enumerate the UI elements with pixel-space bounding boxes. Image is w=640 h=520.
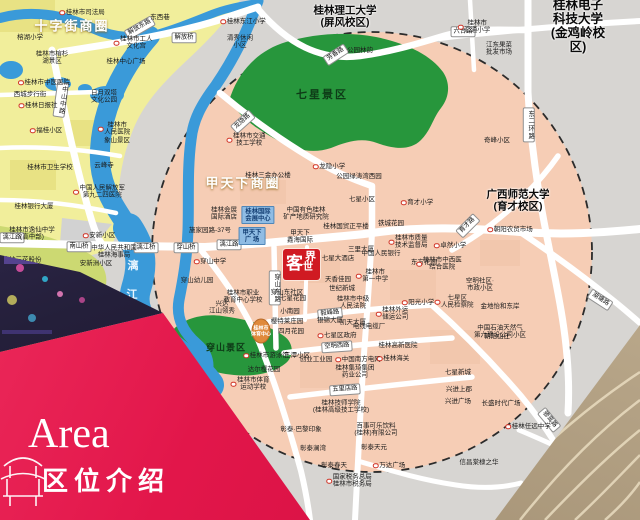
- poi-marker-icon: [318, 333, 324, 339]
- poi-label: 江东果菜 批发市场: [486, 42, 512, 57]
- landmark-box-label: 甲天下 广 场: [239, 227, 266, 245]
- poi-label: 创业工业园: [300, 356, 333, 364]
- landmark-box-label: 桂林国际 会展中心: [241, 206, 274, 224]
- road-label: 育才路: [455, 213, 481, 239]
- road-label: 穿山桥: [174, 242, 199, 253]
- poi-label: 兴进广场: [445, 398, 471, 406]
- poi-marker-icon: [356, 273, 362, 279]
- poi-label: 云峰寺: [94, 162, 114, 170]
- university-label: 桂林电子科技大学 (金鸡岭校区): [547, 0, 609, 54]
- poi-label: 桂林市 汇通小学: [458, 20, 491, 35]
- road-label: 解放桥: [172, 32, 197, 43]
- poi-marker-icon: [98, 126, 104, 132]
- poi-label: 龙隐小学: [313, 163, 346, 171]
- poi-label: 桂林日报社: [19, 102, 58, 110]
- logo-char: 界: [305, 252, 316, 263]
- poi-label: 桂林国贸正平楼: [323, 223, 369, 231]
- poi-marker-icon: [243, 353, 249, 359]
- river-label: 漓: [128, 260, 139, 272]
- poi-label: 彰泰澜湾: [300, 445, 326, 453]
- poi-label: 福桂小区: [30, 127, 63, 135]
- poi-marker-icon: [376, 311, 382, 317]
- poi-label: 桂林市体育 运动学校: [231, 377, 270, 392]
- banner-title-en: Area: [28, 410, 110, 458]
- poi-label: 兴达 江山领秀: [209, 301, 235, 316]
- poi-marker-icon: [313, 164, 319, 170]
- poi-label: 奇峰小区: [484, 137, 510, 145]
- poi-label: 桂林市榕杉 湖景区: [36, 51, 69, 66]
- poi-marker-icon: [435, 299, 441, 305]
- banner-title-zh: 区位介绍: [42, 461, 170, 498]
- poi-label: 桂林市工人 文化宫: [114, 36, 153, 51]
- poi-marker-icon: [416, 261, 422, 267]
- poi-label: 空明社区· 市政小区: [466, 278, 494, 293]
- poi-label: 安新小区: [83, 232, 116, 240]
- poi-label: 桂林市中级 人民法院: [337, 296, 370, 311]
- university-label: 桂林理工大学 (屏风校区): [314, 5, 377, 29]
- poi-label: 桂林市卫生学校: [27, 164, 73, 172]
- poi-label: 桂林外运 储运公司: [376, 307, 409, 322]
- poi-marker-icon: [220, 19, 226, 25]
- road-label: 南山桥: [67, 241, 92, 252]
- poi-label: 甲天下 鑫海国际: [287, 230, 313, 245]
- poi-marker-icon: [402, 300, 408, 306]
- poi-label: 穿山幼儿园: [181, 277, 214, 285]
- poi-marker-icon: [114, 40, 120, 46]
- poi-label: 七星小区: [349, 196, 375, 204]
- poi-marker-icon: [30, 128, 36, 134]
- poi-marker-icon: [194, 259, 200, 265]
- poi-label: 三里大厦: [348, 246, 374, 254]
- poi-label: 七星花园: [280, 295, 306, 303]
- poi-label: 樱特莱庄园: [271, 318, 304, 326]
- poi-label: 彰泰·巴黎印象: [280, 426, 321, 434]
- poi-label: 金地怡和东岸: [481, 303, 520, 311]
- university-label: 广西师范大学 (育才校区): [487, 189, 550, 213]
- poi-label: 桂林海关: [377, 355, 410, 363]
- poi-marker-icon: [19, 103, 25, 109]
- poi-label: 中国南方电网: [335, 356, 381, 364]
- poi-label: 卓然小学: [434, 242, 467, 250]
- poi-marker-icon: [59, 10, 65, 16]
- road-label: 芳香路: [322, 43, 349, 66]
- poi-label: 桂林市中医医院: [18, 79, 70, 87]
- poi-label: 铁城花园: [378, 220, 404, 228]
- road-label: 东二环路: [523, 107, 535, 142]
- poi-marker-icon: [505, 424, 511, 430]
- poi-label: 银锦大厦: [317, 317, 343, 325]
- poi-label: 桂林技师学院 (桂林高级技工学校): [313, 400, 369, 415]
- poi-label: 七星区 人民检察院: [435, 295, 474, 310]
- poi-label: 桂林三金办公楼: [245, 172, 291, 180]
- poi-marker-icon: [389, 239, 395, 245]
- poi-label: 朝阳农贸市场: [487, 226, 533, 234]
- poi-label: 日月双塔 文化公园: [91, 90, 117, 105]
- poi-label: 天香佳园: [325, 276, 351, 284]
- poi-label: 百事可乐饮料 (桂林)有限公司: [354, 423, 397, 438]
- road-label: 六合路: [451, 26, 476, 37]
- poi-label: 清秀休闲 小区: [227, 35, 253, 50]
- poi-label: 中华人民共和国 桂林海事局: [91, 245, 137, 260]
- stadium-label: 桂林市 体育中心: [251, 326, 271, 337]
- poi-label: 七星新城: [445, 369, 471, 377]
- poi-marker-icon: [326, 478, 332, 484]
- poi-marker-icon: [373, 463, 379, 469]
- poi-label: 国家税务总局 桂林市税务局: [326, 474, 372, 489]
- poi-marker-icon: [335, 357, 341, 363]
- poi-label: 凯天大厦: [340, 319, 366, 327]
- road-label: 骖鸾路: [537, 407, 562, 433]
- road-label: 穿山东路: [269, 270, 281, 305]
- poi-label: 桂林高新医院: [379, 342, 418, 350]
- poi-label: 桂林市 第一中学: [356, 269, 389, 284]
- poi-marker-icon: [401, 200, 407, 206]
- poi-label: 桂林市质量 技术监督局: [389, 235, 428, 250]
- poi-label: 四月花园: [278, 328, 304, 336]
- poi-marker-icon: [487, 227, 493, 233]
- poi-label: 万达广场: [373, 462, 406, 470]
- poi-label: 中国有色桂林 矿产地质研究院: [283, 207, 329, 222]
- poi-label: 世纪新城: [329, 285, 355, 293]
- road-label: 解放东路: [124, 15, 157, 40]
- poi-label: 中国人民银行: [362, 250, 401, 258]
- poi-label: 小南园: [280, 308, 300, 316]
- poi-label: 公园绿涛湾西园: [336, 173, 382, 181]
- poi-label: 桂林会展 国际酒店: [211, 207, 237, 222]
- poi-label: 施家园路-37号: [189, 227, 231, 235]
- poi-label: 长盛时代广场: [482, 400, 521, 408]
- poi-label: 安新洲小区: [80, 260, 113, 268]
- district-label: 甲天下商圈: [205, 177, 280, 192]
- road-label: 漓江桥: [134, 242, 159, 253]
- poi-label: 七星大酒店: [322, 255, 355, 263]
- road-label: 中山中路: [52, 82, 69, 119]
- poi-label: 阳光小学: [402, 299, 435, 307]
- poi-label: 桂林市中西医 结合医院: [416, 257, 462, 272]
- poi-label: 育才小学: [401, 199, 434, 207]
- poi-label: 中国人民解放军 第九二四医院: [73, 185, 125, 200]
- keshijie-project-logo: 客 世 界: [283, 249, 320, 280]
- road-label: 空明西路: [321, 340, 353, 354]
- poi-marker-icon: [227, 137, 233, 143]
- poi-label: 桂林任远中学: [505, 423, 551, 431]
- poi-marker-icon: [73, 189, 79, 195]
- poi-label: 桂林银行大厦: [15, 203, 54, 211]
- poi-label: 桂林市交通 技工学校: [227, 133, 266, 148]
- park-label: 七星景区: [296, 89, 348, 101]
- road-label: 漓江路: [217, 239, 242, 250]
- poi-marker-icon: [434, 243, 440, 249]
- poi-label: 桂林市游泳馆: [243, 352, 289, 360]
- poi-label: 桂林市逸仙中学 (高中部): [9, 227, 55, 242]
- poi-marker-icon: [83, 233, 89, 239]
- poi-label: 朝阳山庄: [484, 333, 510, 341]
- poi-label: 三潭小区: [284, 352, 310, 360]
- road-label: 漓江路: [0, 232, 24, 243]
- poi-label: 达尔樱花园: [248, 366, 281, 374]
- poi-marker-icon: [377, 356, 383, 362]
- poi-label: 桂林集琦集团 药业公司: [336, 365, 375, 380]
- logo-char: 客: [286, 255, 303, 272]
- poi-marker-icon: [231, 381, 237, 387]
- poi-label: 电线电缆厂: [353, 323, 386, 331]
- poi-label: 桂林中心广场: [107, 58, 146, 66]
- road-label: 龙隐路: [230, 109, 256, 134]
- poi-label: 彰泰春天: [321, 462, 347, 470]
- poi-label: 西城步行街: [14, 91, 47, 99]
- poi-label: 象山景区: [104, 137, 130, 145]
- poi-label: 兴进上郡: [446, 386, 472, 394]
- park-label: 穿山景区: [206, 342, 246, 353]
- poi-label: 穿山东社区: [271, 289, 304, 297]
- poi-label: 桂林市职业 教育中心学校: [224, 290, 263, 305]
- road-label: 湖塘路: [586, 288, 613, 311]
- logo-char: 世: [303, 263, 313, 273]
- poi-label: 中国石油天然气 第六建设公司小区: [474, 325, 526, 340]
- district-label: 十字街商圈: [34, 20, 109, 35]
- poi-label: 彰泰天元: [361, 444, 387, 452]
- poi-label: 信昌棠棣之华: [460, 459, 499, 467]
- poi-label: 东西巷: [150, 14, 170, 22]
- road-label: 毅峰路: [317, 307, 343, 321]
- location-map-slide: 十字街商圈甲天下商圈联达商圈七星景区穿山景区桂林理工大学 (屏风校区)桂林电子科…: [0, 0, 640, 520]
- poi-label: 桂林市司法局: [59, 9, 105, 17]
- poi-label: 七星区政府: [318, 332, 357, 340]
- poi-label: 公园林韵: [347, 47, 373, 55]
- poi-marker-icon: [18, 80, 24, 86]
- poi-marker-icon: [458, 24, 464, 30]
- road-label: 五里店路: [329, 383, 361, 397]
- poi-label: 桂林市 人民医院: [98, 122, 131, 137]
- poi-label: 榕湖小学: [17, 34, 43, 42]
- poi-label: 东方花园: [411, 259, 437, 267]
- poi-label: 穿山中学: [194, 258, 227, 266]
- poi-label: 桂林东江小学: [220, 18, 266, 26]
